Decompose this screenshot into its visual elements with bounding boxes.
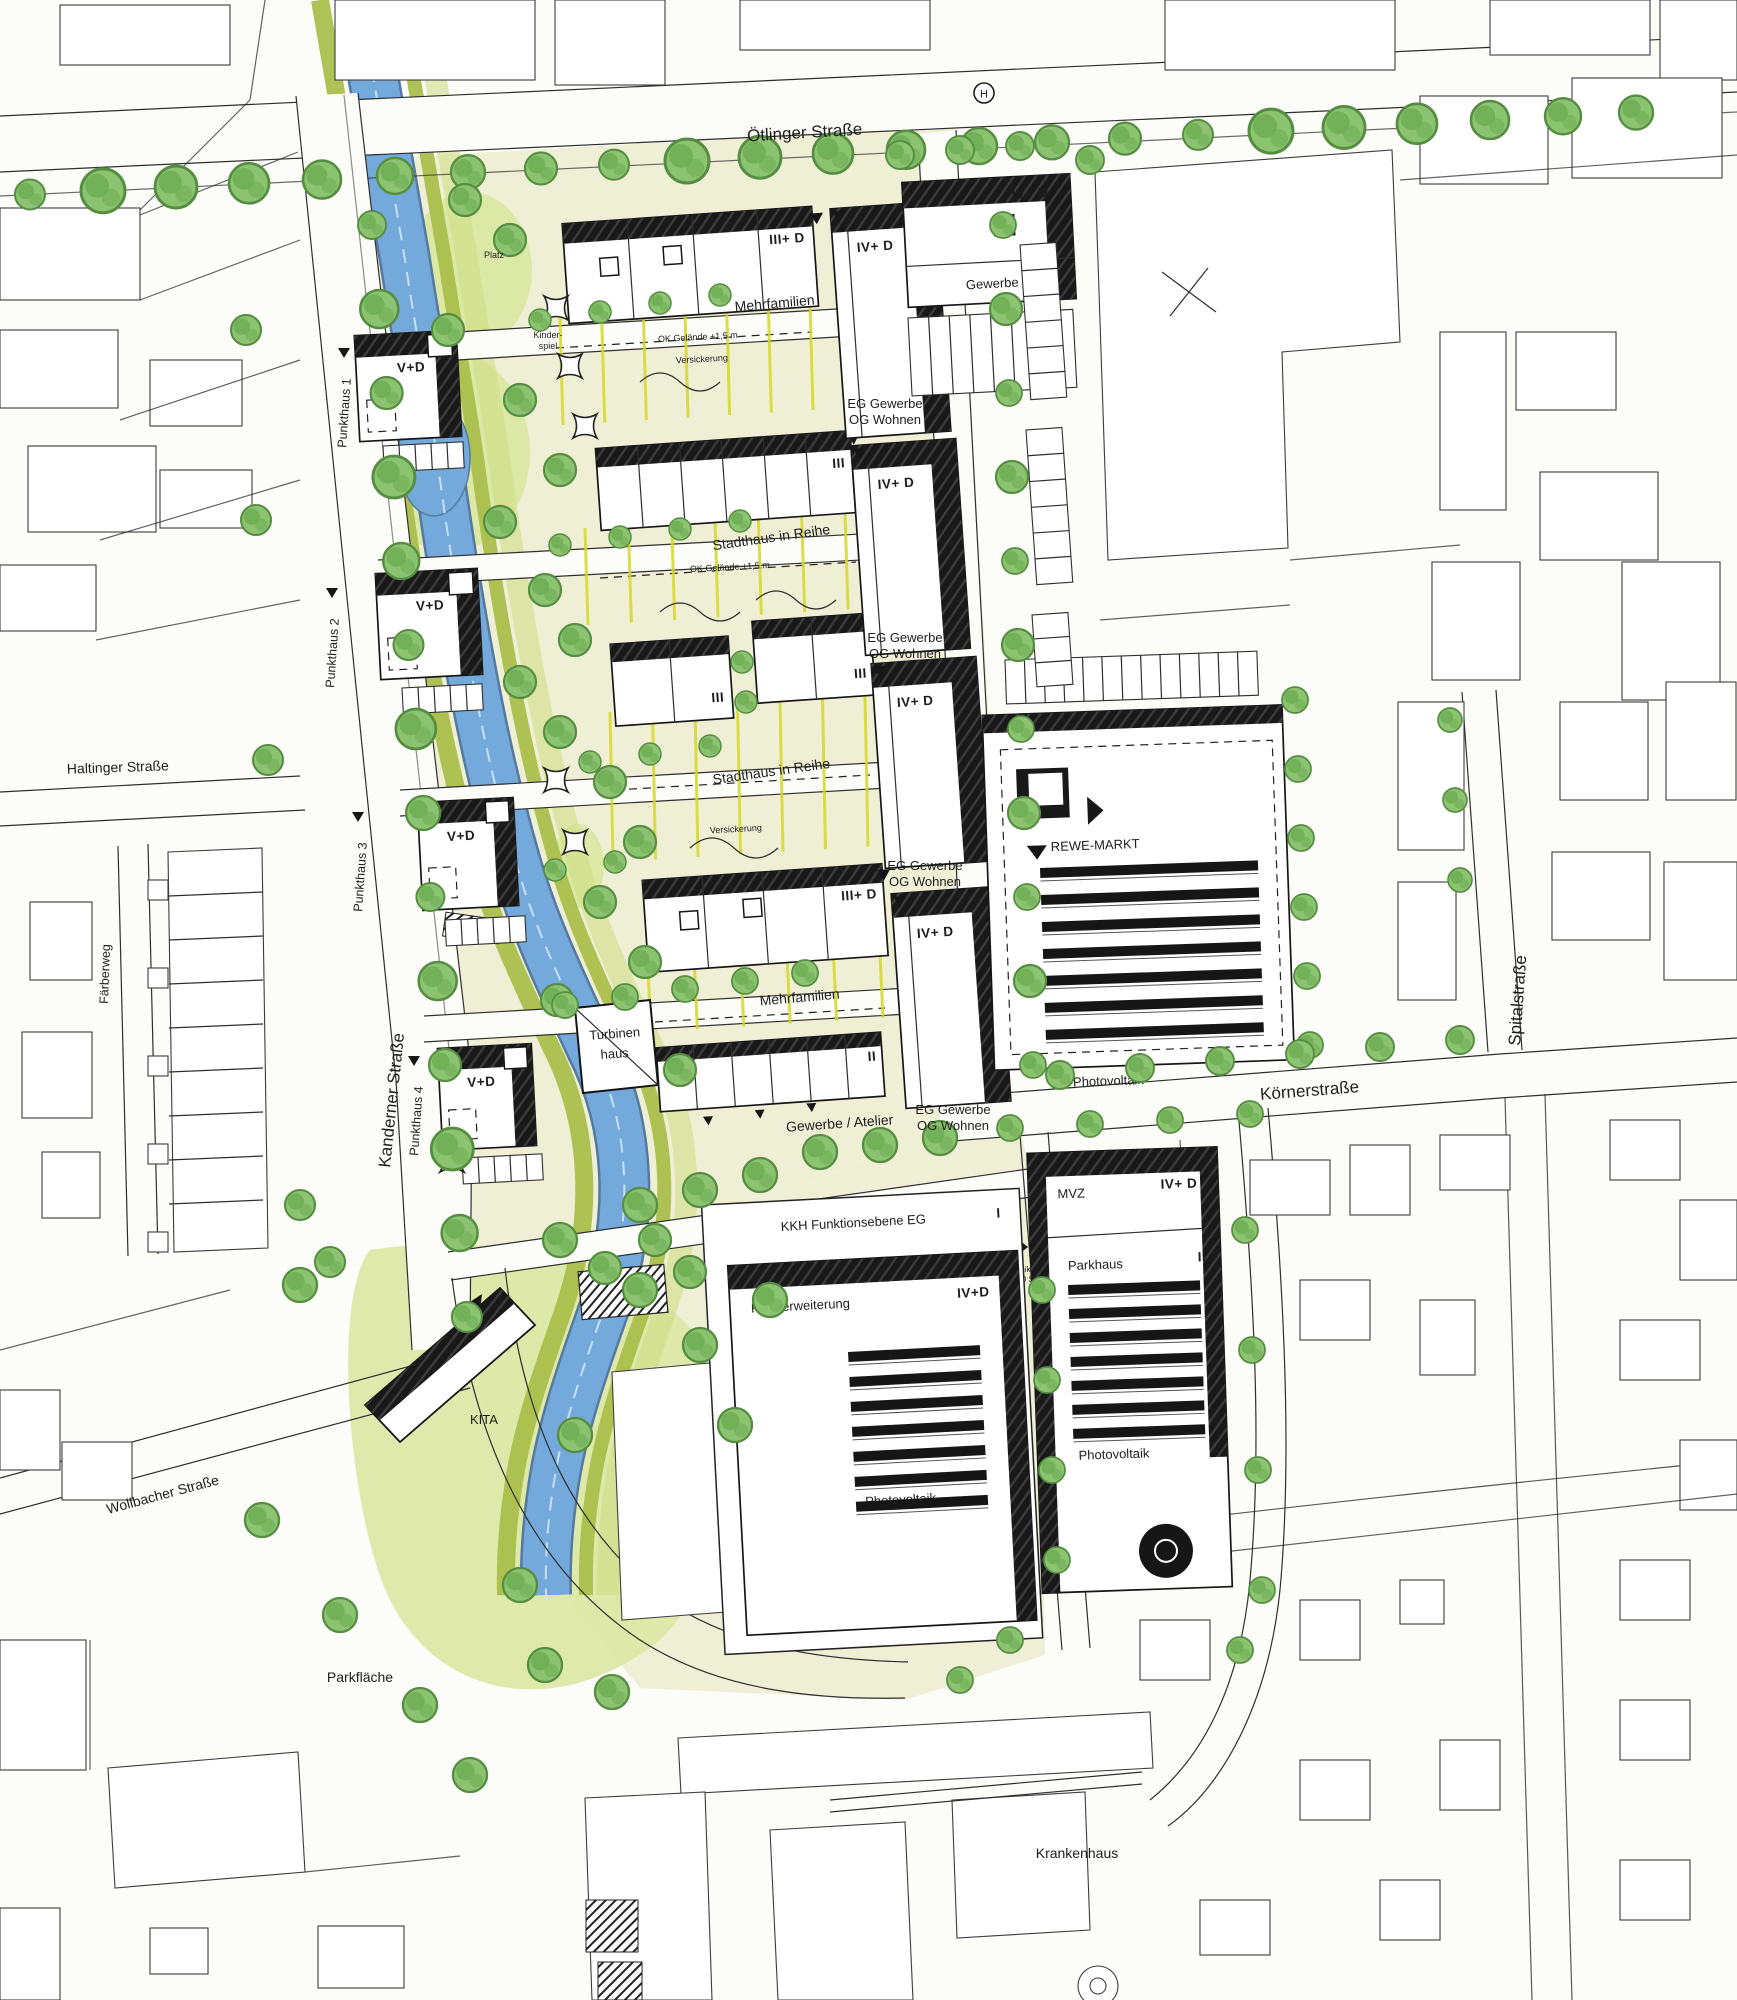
row-tooth [148, 880, 168, 900]
tree-icon [743, 1158, 777, 1192]
tree-icon [589, 1252, 621, 1284]
tree-icon [323, 1598, 357, 1632]
height-label: IV+ D [916, 924, 954, 942]
existing-building [1620, 1860, 1690, 1920]
parking-row [445, 916, 526, 946]
tree-icon [1020, 1052, 1046, 1078]
mvz-label: MVZ [1057, 1185, 1085, 1201]
tree-icon [731, 651, 753, 673]
tree-icon [990, 212, 1016, 238]
tree-icon [528, 1648, 562, 1682]
tree-icon [803, 1135, 837, 1169]
tree-icon [525, 152, 557, 184]
tree-icon [718, 1408, 752, 1442]
tree-icon [442, 1215, 478, 1251]
parkflaeche-label: Parkfläche [327, 1669, 393, 1685]
tree-icon [383, 543, 419, 579]
tree-icon [1039, 1457, 1065, 1483]
parkhaus-label: Parkhaus [1068, 1256, 1124, 1273]
playground-icon [563, 830, 587, 854]
height-label: V+D [397, 359, 426, 375]
site-plan: V+D V+D V+D V+D [0, 0, 1737, 2000]
existing-building [1165, 0, 1395, 70]
height-label: II [867, 1049, 877, 1065]
existing-building [1300, 1600, 1360, 1660]
existing-building [1380, 1880, 1440, 1940]
tree-icon [753, 1283, 787, 1317]
existing-building [0, 1640, 86, 1770]
hatched-court [598, 1962, 642, 2000]
tree-icon [664, 1054, 696, 1086]
building-tower-3: IV+ D [871, 657, 990, 869]
tree-icon [1249, 1577, 1275, 1603]
tree-icon [1077, 1111, 1103, 1137]
tree-icon [285, 1190, 315, 1220]
site-plan-svg: V+D V+D V+D V+D [0, 0, 1737, 2000]
tree-icon [946, 136, 974, 164]
tree-icon [1206, 1047, 1234, 1075]
tree-icon [683, 1328, 717, 1362]
tree-icon [432, 314, 464, 346]
eg-gewerbe-2: EG Gewerbe [867, 630, 942, 645]
tree-icon [253, 745, 283, 775]
parking-row [1032, 612, 1073, 686]
tree-icon [735, 691, 757, 713]
tree-icon [529, 309, 551, 331]
tree-icon [649, 292, 671, 314]
building-mvz-parkhaus: MVZ IV+ D Parkhaus II Photovoltaik [1027, 1147, 1232, 1593]
eg-gewerbe-3: EG Gewerbe [887, 858, 962, 873]
tree-icon [996, 461, 1028, 493]
tree-icon [792, 960, 818, 986]
existing-building [1440, 332, 1506, 510]
tree-icon [1619, 96, 1653, 130]
existing-building [0, 1908, 60, 2000]
existing-building [108, 1752, 305, 1888]
tree-icon [559, 624, 591, 656]
tree-icon [1249, 109, 1293, 153]
og-wohnen-4: OG Wohnen [917, 1118, 989, 1133]
existing-building [1420, 1300, 1475, 1375]
tree-icon [315, 1247, 345, 1277]
tree-icon [419, 962, 457, 1000]
tree-icon [245, 1503, 279, 1537]
tree-icon [1002, 548, 1028, 574]
tree-icon [1282, 687, 1308, 713]
height-label: IV+ D [856, 238, 894, 256]
bus-stop-h: H [980, 89, 988, 101]
tree-icon [1448, 868, 1472, 892]
existing-building [1622, 562, 1720, 700]
round-structure [1090, 1978, 1106, 1994]
existing-building [28, 446, 156, 532]
kinderspiel-label-1: Kinder- [533, 330, 562, 340]
tree-icon [15, 179, 45, 209]
existing-building [0, 565, 96, 631]
existing-building [952, 1792, 1090, 1938]
tree-icon [544, 716, 576, 748]
tree-icon [1288, 825, 1314, 851]
existing-building [770, 1822, 913, 2000]
height-label: III+ D [769, 230, 806, 247]
building-punkthaus-2: V+D [375, 568, 482, 679]
tree-icon [1239, 1337, 1265, 1363]
building-row-mehrfamilien-2: III+ D [642, 863, 896, 972]
tree-icon [1438, 708, 1462, 732]
parking-outline [1032, 612, 1073, 686]
existing-building [150, 1928, 208, 1974]
tree-icon [732, 968, 758, 994]
tree-icon [231, 315, 261, 345]
height-label: II [1197, 1249, 1206, 1264]
tree-icon [996, 380, 1022, 406]
building-tower-2: IV+ D [851, 439, 970, 656]
parking-outline [462, 1154, 543, 1184]
row-tooth [148, 1232, 168, 1252]
existing-building [1610, 1120, 1680, 1180]
tree-icon [503, 1568, 537, 1602]
tree-icon [1397, 104, 1437, 144]
tree-icon [589, 301, 611, 323]
tree-icon [604, 851, 626, 873]
tree-icon [639, 1224, 671, 1256]
tree-icon [595, 1675, 629, 1709]
tree-icon [629, 946, 661, 978]
existing-building [1432, 562, 1520, 680]
tree-icon [699, 735, 721, 757]
tree-icon [377, 158, 413, 194]
tree-icon [947, 1667, 973, 1693]
bus-stop-icon: H [974, 83, 994, 103]
tree-icon [544, 859, 566, 881]
hatched-court [586, 1900, 638, 1952]
existing-building [1516, 332, 1616, 410]
existing-building [1398, 882, 1456, 1000]
tree-icon [1183, 120, 1213, 150]
tree-icon [1034, 1367, 1060, 1393]
tree-icon [552, 992, 578, 1018]
existing-building [1552, 852, 1650, 940]
x-building [1400, 1580, 1444, 1624]
row-tooth [148, 1056, 168, 1076]
krankenhaus-label: Krankenhaus [1036, 1845, 1119, 1861]
existing-building [1664, 862, 1737, 980]
tree-icon [672, 976, 698, 1002]
tree-icon [1044, 1547, 1070, 1573]
existing-building [1620, 1700, 1690, 1760]
tree-icon [1237, 1101, 1263, 1127]
tree-icon [1029, 1277, 1055, 1303]
row-tooth [148, 968, 168, 988]
platz-label: Platz [484, 250, 505, 260]
tree-icon [406, 796, 440, 830]
height-label: III [854, 666, 868, 682]
existing-building [1620, 1320, 1700, 1380]
tree-icon [303, 161, 341, 199]
existing-building [1250, 1160, 1330, 1215]
existing-building [150, 360, 242, 426]
tree-icon [1291, 894, 1317, 920]
parking-outline [445, 916, 526, 946]
tree-icon [431, 1128, 473, 1170]
existing-building [0, 208, 140, 300]
height-label: V+D [447, 828, 476, 844]
og-wohnen-3: OG Wohnen [889, 874, 961, 889]
tree-icon [453, 1758, 487, 1792]
existing-building [0, 330, 118, 408]
tree-icon [1545, 98, 1581, 134]
existing-building [1300, 1280, 1370, 1340]
existing-building [1666, 682, 1736, 800]
og-wohnen-1: OG Wohnen [849, 412, 921, 427]
existing-building [1620, 1560, 1690, 1620]
existing-building [1560, 702, 1648, 800]
tree-icon [709, 284, 731, 306]
playground-icon [573, 414, 597, 438]
existing-building [168, 848, 268, 1252]
existing-building [1300, 1760, 1370, 1820]
tree-icon [429, 1049, 461, 1081]
existing-building [1440, 1740, 1500, 1810]
tree-icon [639, 743, 661, 765]
existing-building [1680, 1200, 1737, 1280]
tree-icon [1002, 629, 1034, 661]
height-label: IV+ D [877, 475, 915, 493]
height-label: IV+D [957, 1284, 990, 1301]
existing-building [30, 902, 92, 980]
tree-icon [1232, 1217, 1258, 1243]
tree-icon [403, 1688, 437, 1722]
tree-icon [449, 184, 481, 216]
existing-building [335, 0, 535, 80]
og-wohnen-2: OG Wohnen [869, 646, 941, 661]
playground-icon [544, 768, 568, 792]
tree-icon [544, 454, 576, 486]
tree-icon [624, 826, 656, 858]
tree-icon [594, 766, 626, 798]
tree-icon [623, 1273, 657, 1307]
tree-icon [1285, 756, 1311, 782]
tree-icon [373, 456, 415, 498]
tree-icon [1076, 146, 1104, 174]
tree-icon [1126, 1054, 1154, 1082]
tree-icon [1245, 1457, 1271, 1483]
tree-icon [1471, 101, 1509, 139]
tree-icon [579, 751, 601, 773]
kinderspiel-label-2: spiel [539, 341, 558, 351]
playground-icon [558, 354, 582, 378]
existing-building [318, 1926, 404, 1988]
tree-icon [529, 574, 561, 606]
eg-gewerbe-1: EG Gewerbe [847, 396, 922, 411]
height-label: IV+ D [1011, 185, 1048, 202]
building-punkthaus-1: V+D [354, 330, 461, 441]
existing-building [1200, 1900, 1270, 1955]
row-tooth [148, 1144, 168, 1164]
photovoltaik-label-parkhaus: Photovoltaik [1078, 1445, 1150, 1462]
kita-label: KITA [470, 1412, 498, 1427]
existing-building [22, 1032, 92, 1118]
existing-building [60, 5, 230, 65]
tree-icon [1286, 1040, 1314, 1068]
tree-icon [549, 534, 571, 556]
tree-icon [81, 169, 125, 213]
tree-icon [1006, 132, 1034, 160]
height-label: III [711, 690, 725, 706]
tree-icon [396, 709, 436, 749]
tree-icon [1446, 1026, 1474, 1054]
tree-icon [584, 886, 616, 918]
existing-building [0, 1390, 60, 1470]
height-label: V+D [467, 1074, 496, 1090]
tree-icon [394, 630, 424, 660]
eg-gewerbe-4: EG Gewerbe [915, 1102, 990, 1117]
tree-icon [484, 506, 516, 538]
height-label: III [832, 455, 846, 471]
tree-icon [1014, 965, 1046, 997]
tree-icon [729, 510, 751, 532]
existing-building [1140, 1620, 1210, 1680]
tree-icon [997, 1627, 1023, 1653]
tree-icon [674, 1256, 706, 1288]
street-faerberweg: Färberweg [97, 944, 113, 1004]
existing-building [1490, 0, 1650, 55]
tree-icon [241, 505, 271, 535]
tree-icon [155, 166, 197, 208]
tree-icon [1366, 1033, 1394, 1061]
tree-icon [665, 139, 709, 183]
height-label: III+ D [841, 886, 878, 903]
tree-icon [1443, 788, 1467, 812]
gewerbe-label: Gewerbe [966, 275, 1019, 293]
existing-building [42, 1152, 100, 1218]
tree-icon [504, 666, 536, 698]
tree-icon [1227, 1637, 1253, 1663]
tree-icon [1294, 963, 1320, 989]
tree-icon [886, 141, 914, 169]
tree-icon [990, 293, 1022, 325]
tree-icon [1157, 1107, 1183, 1133]
tree-icon [1008, 716, 1034, 742]
tree-icon [599, 150, 629, 180]
rewe-label: REWE-MARKT [1051, 836, 1140, 854]
turbinenhaus-label-2: haus [600, 1045, 630, 1062]
height-label: V+D [416, 597, 445, 613]
parking-row [462, 1154, 543, 1184]
tree-icon [1046, 1061, 1074, 1089]
tree-icon [1323, 106, 1365, 148]
existing-building [1572, 78, 1722, 178]
tree-icon [452, 1302, 482, 1332]
tree-icon [229, 163, 269, 203]
existing-building [1660, 0, 1737, 80]
existing-building [740, 0, 930, 50]
existing-building [62, 1442, 132, 1500]
tree-icon [558, 1418, 592, 1452]
tree-icon [1109, 123, 1141, 155]
existing-building [1540, 472, 1658, 560]
tree-icon [283, 1268, 317, 1302]
tree-icon [504, 384, 536, 416]
tree-icon [543, 1223, 577, 1257]
tree-icon [371, 377, 403, 409]
existing-building [1350, 1145, 1410, 1215]
tree-icon [360, 290, 398, 328]
tree-icon [683, 1173, 717, 1207]
building-turbinenhaus: Turbinen haus [575, 1000, 658, 1093]
height-label: I [996, 1205, 1001, 1220]
tree-icon [1014, 884, 1040, 910]
height-label: IV+ D [896, 693, 934, 711]
tree-icon [358, 211, 386, 239]
tree-icon [623, 1188, 657, 1222]
tree-icon [609, 526, 631, 548]
tree-icon [416, 883, 444, 911]
tree-icon [612, 984, 638, 1010]
existing-building [1440, 1135, 1510, 1190]
height-label: IV+ D [1160, 1176, 1197, 1192]
existing-building [555, 0, 665, 85]
tree-icon [669, 518, 691, 540]
tree-icon [1035, 125, 1069, 159]
tree-icon [863, 1128, 897, 1162]
tree-icon [997, 1115, 1023, 1141]
tree-icon [1008, 797, 1040, 829]
